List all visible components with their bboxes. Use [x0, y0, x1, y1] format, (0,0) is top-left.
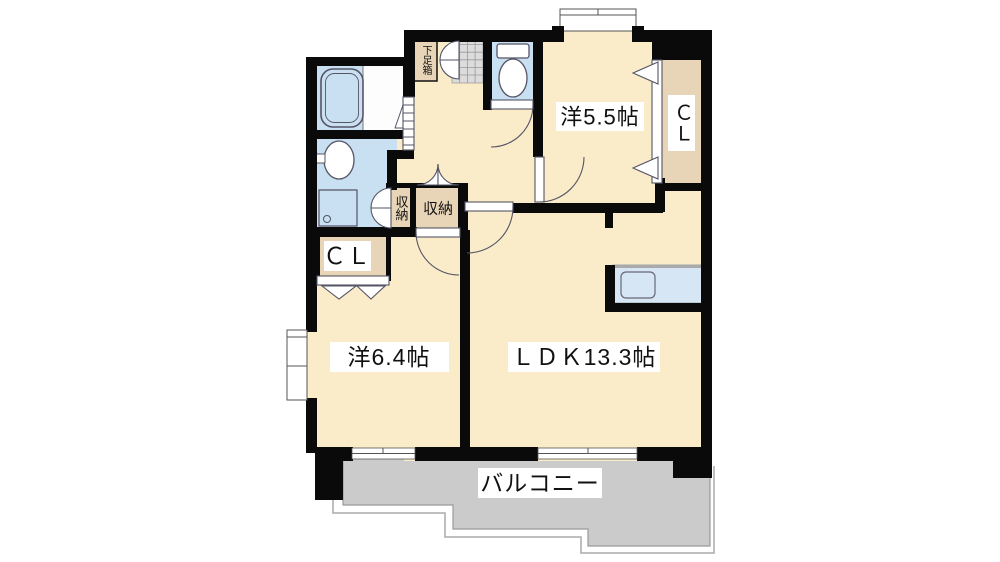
washbasin-tap-icon	[316, 154, 325, 163]
bedroom55-door-panel	[535, 157, 544, 202]
closet-right-label: ＣＬ	[671, 102, 693, 144]
closet-left-label: ＣＬ	[323, 243, 371, 269]
wall-toilet-east	[533, 30, 543, 157]
wall-stub-ldk	[605, 210, 613, 228]
toilet-tank-icon	[497, 44, 529, 58]
window-top-post-left	[552, 26, 564, 42]
wall-bath-wash-divider	[306, 130, 412, 139]
toilet-bowl-icon	[499, 59, 527, 97]
wall-bath-east-upper	[403, 57, 415, 97]
wall-pillar-bottomleft	[315, 450, 343, 500]
wall-left-lower	[306, 398, 317, 453]
bedroom64-label: 洋6.4帖	[348, 344, 431, 370]
wall-pillar-bottomright	[673, 450, 712, 478]
kitchen	[613, 265, 702, 303]
kitchen-counter	[613, 265, 702, 303]
wall-bath-top	[306, 57, 412, 66]
closet-left-door-panel	[317, 276, 389, 285]
bedroom55-label: 洋5.5帖	[560, 105, 640, 130]
washbasin-icon	[324, 141, 354, 179]
window-left-bay	[287, 330, 307, 400]
wall-hall-south	[513, 203, 663, 213]
ldk-door-panel	[465, 202, 513, 211]
wall-toilet-west	[483, 30, 492, 110]
balcony-label: バルコニー	[480, 470, 600, 496]
wall-wash-south	[306, 227, 417, 237]
bedroom64-door-panel	[416, 228, 460, 237]
wall-room-divider	[460, 230, 470, 461]
wall-kitchen-bottom	[605, 303, 702, 312]
ldk-label: ＬＤＫ13.3帖	[512, 344, 657, 370]
wall-right	[701, 30, 712, 461]
toilet-door-panel	[491, 100, 533, 109]
shoe-box-label: 下足箱	[420, 45, 432, 76]
window-top-post-right	[632, 26, 644, 42]
wall-left-upper	[306, 57, 317, 332]
floorplan-canvas: 洋5.5帖 ＣＬ 洋6.4帖 ＬＤＫ13.3帖 バルコニー ＣＬ 収納 収納 下…	[0, 0, 1000, 562]
wall-wash-east	[387, 150, 397, 190]
storage-small-label: 収納	[394, 195, 409, 222]
storage-large-label: 収納	[423, 201, 453, 218]
wall-bottom-seg2	[415, 447, 538, 461]
